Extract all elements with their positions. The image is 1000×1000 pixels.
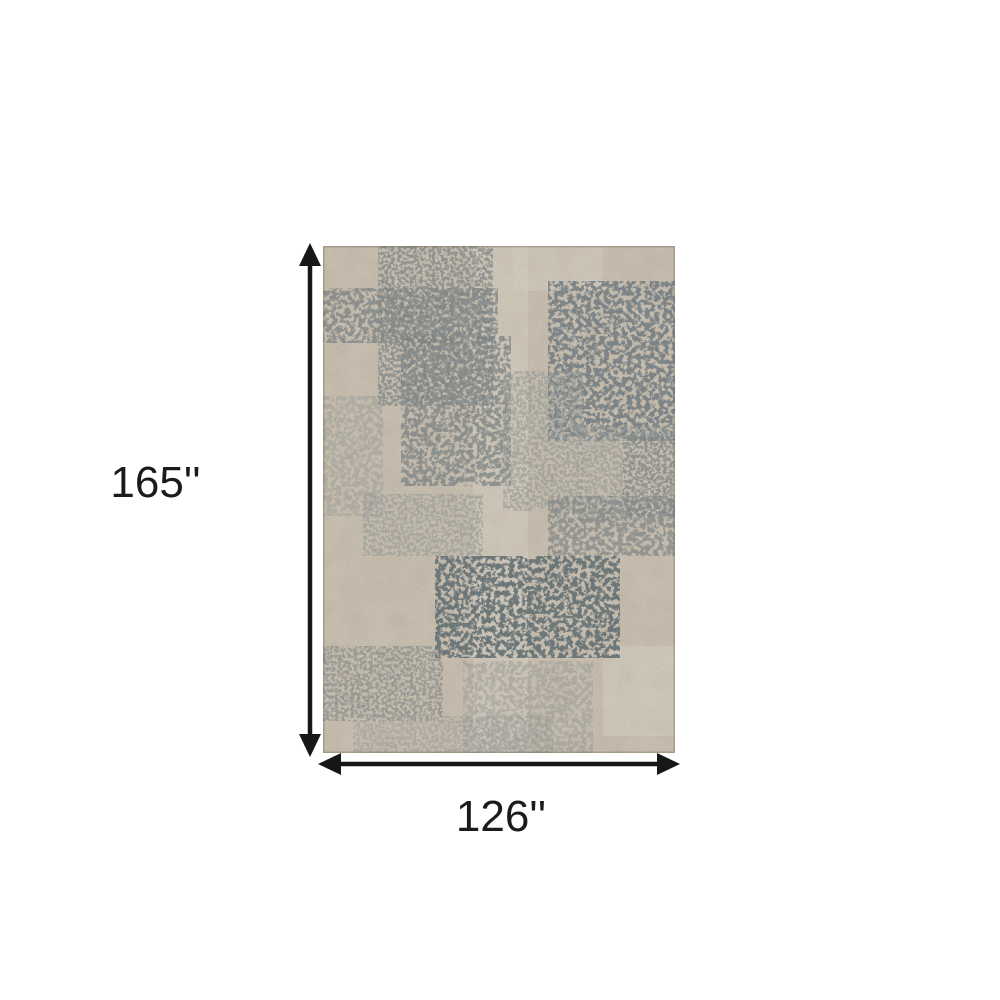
arrow-up-icon: [299, 243, 321, 266]
arrow-left-icon: [318, 753, 341, 775]
arrow-down-icon: [299, 734, 321, 757]
height-dimension-arrow: [299, 243, 321, 757]
width-dimension-label: 126'': [441, 795, 561, 839]
width-dimension-arrow: [318, 753, 680, 775]
arrow-right-icon: [657, 753, 680, 775]
dimension-diagram: 165'' 126'': [0, 0, 1000, 1000]
height-dimension-label: 165'': [98, 461, 213, 505]
rug-swatch-image: [323, 246, 675, 753]
